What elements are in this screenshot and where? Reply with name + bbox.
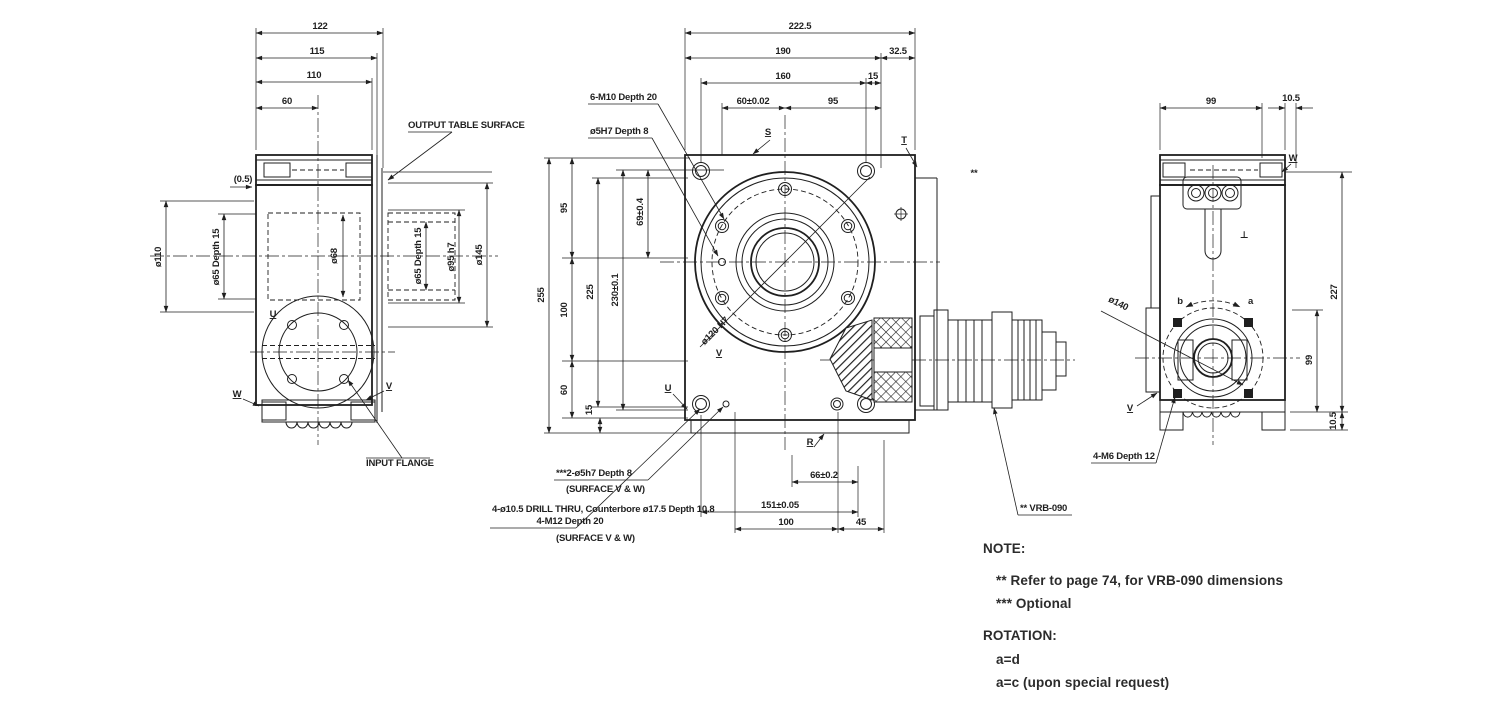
dim-151-tol: 151±0.05 bbox=[761, 500, 800, 511]
dim-95-left: 95 bbox=[559, 202, 570, 213]
surface-label-w-left: W bbox=[233, 389, 242, 400]
surface-label-u-left: U bbox=[270, 309, 277, 320]
dim-dia145: ø145 bbox=[474, 244, 485, 266]
surface-label-w-right: W bbox=[1289, 153, 1298, 164]
dim-100-bottom: 100 bbox=[778, 517, 793, 528]
surface-label-s: S bbox=[765, 127, 771, 138]
perpendicular-mark: ⊥ bbox=[1240, 230, 1248, 241]
dim-222-5: 222.5 bbox=[789, 21, 813, 32]
rotation-block: ROTATION: a=d a=c (upon special request) bbox=[983, 628, 1169, 690]
dim-60-left: 60 bbox=[559, 385, 570, 395]
input-flange-label: INPUT FLANGE bbox=[366, 458, 434, 469]
dim-45: 45 bbox=[856, 517, 867, 528]
callout-surface-vw-2: (SURFACE V & W) bbox=[556, 533, 635, 544]
dim-dia68: ø68 bbox=[329, 248, 340, 264]
callout-2-pin-5h7-bottom: ***2-ø5h7 Depth 8 bbox=[556, 468, 632, 479]
callout-drill-counterbore: 4-ø10.5 DRILL THRU, Counterbore ø17.5 De… bbox=[492, 504, 715, 515]
surface-label-u-front: U bbox=[665, 383, 672, 394]
dim-190: 190 bbox=[775, 46, 790, 57]
callout-4-m6: 4-M6 Depth 12 bbox=[1093, 451, 1155, 462]
dim-bolt-circle-140: ø140 bbox=[1106, 294, 1130, 313]
rotation-heading: ROTATION: bbox=[983, 628, 1057, 643]
callout-vrb-090: ** VRB-090 bbox=[1020, 503, 1067, 514]
dim-115: 115 bbox=[310, 46, 326, 57]
surface-label-v-right: V bbox=[1127, 403, 1134, 414]
surface-label-t: T bbox=[901, 135, 907, 146]
callout-4-m12: 4-M12 Depth 20 bbox=[537, 516, 604, 527]
note-line-refer: ** Refer to page 74, for VRB-090 dimensi… bbox=[996, 573, 1283, 588]
dim-gap-05: (0.5) bbox=[234, 174, 253, 185]
dim-100-left: 100 bbox=[559, 302, 570, 317]
rotation-label-a: a bbox=[1248, 296, 1254, 307]
dim-227: 227 bbox=[1329, 284, 1340, 299]
front-view: ø120 H7 ** 222. bbox=[490, 21, 1075, 544]
dim-dia110: ø110 bbox=[153, 247, 164, 267]
dim-dia95h7: ø95 h7 bbox=[446, 243, 457, 272]
surface-label-v-front: V bbox=[716, 348, 723, 359]
surface-label-v-left: V bbox=[386, 381, 393, 392]
rotation-line-ad: a=d bbox=[996, 652, 1020, 667]
stars-marker: ** bbox=[971, 168, 978, 179]
output-table-surface-label: OUTPUT TABLE SURFACE bbox=[408, 120, 525, 131]
dim-dia65-right: ø65 Depth 15 bbox=[413, 227, 424, 285]
dim-69-tol: 69±0.4 bbox=[635, 197, 646, 226]
dim-230-tol: 230±0.1 bbox=[610, 273, 621, 307]
dim-10-5-top: 10.5 bbox=[1282, 93, 1301, 104]
rotation-label-b: b bbox=[1177, 296, 1183, 307]
dim-95-top: 95 bbox=[828, 96, 839, 107]
callout-surface-vw-1: (SURFACE V & W) bbox=[566, 484, 645, 495]
notes-block: NOTE: ** Refer to page 74, for VRB-090 d… bbox=[983, 541, 1283, 611]
note-heading: NOTE: bbox=[983, 541, 1026, 556]
dim-60: 60 bbox=[282, 96, 292, 107]
engineering-drawing: 122 115 110 60 (0.5) ø110 ø65 Depth 15 ø… bbox=[0, 0, 1500, 720]
dim-99-top: 99 bbox=[1206, 96, 1216, 107]
dim-15-top: 15 bbox=[868, 71, 879, 82]
dim-160: 160 bbox=[775, 71, 790, 82]
callout-6-m10: 6-M10 Depth 20 bbox=[590, 92, 657, 103]
dim-255: 255 bbox=[536, 286, 547, 302]
dim-225: 225 bbox=[585, 283, 596, 299]
rotation-line-ac: a=c (upon special request) bbox=[996, 675, 1169, 690]
callout-pin-5h7-top: ø5H7 Depth 8 bbox=[590, 126, 648, 137]
dim-60-tol: 60±0.02 bbox=[737, 96, 770, 107]
right-side-view: ⊥ b a ø140 99 10.5 W bbox=[1091, 93, 1352, 463]
surface-label-r: R bbox=[807, 437, 814, 448]
dim-99-right: 99 bbox=[1304, 355, 1315, 365]
dim-122: 122 bbox=[312, 21, 327, 32]
dim-32-5: 32.5 bbox=[889, 46, 908, 57]
dim-110: 110 bbox=[307, 70, 322, 81]
dim-15-left: 15 bbox=[584, 404, 595, 415]
dim-10-5-bottom: 10.5 bbox=[1328, 411, 1339, 430]
dim-dia65-left: ø65 Depth 15 bbox=[211, 228, 222, 286]
note-line-optional: *** Optional bbox=[996, 596, 1071, 611]
dim-66-tol: 66±0.2 bbox=[810, 470, 838, 481]
left-side-view: 122 115 110 60 (0.5) ø110 ø65 Depth 15 ø… bbox=[150, 21, 525, 469]
drawing-canvas: 122 115 110 60 (0.5) ø110 ø65 Depth 15 ø… bbox=[0, 0, 1500, 720]
